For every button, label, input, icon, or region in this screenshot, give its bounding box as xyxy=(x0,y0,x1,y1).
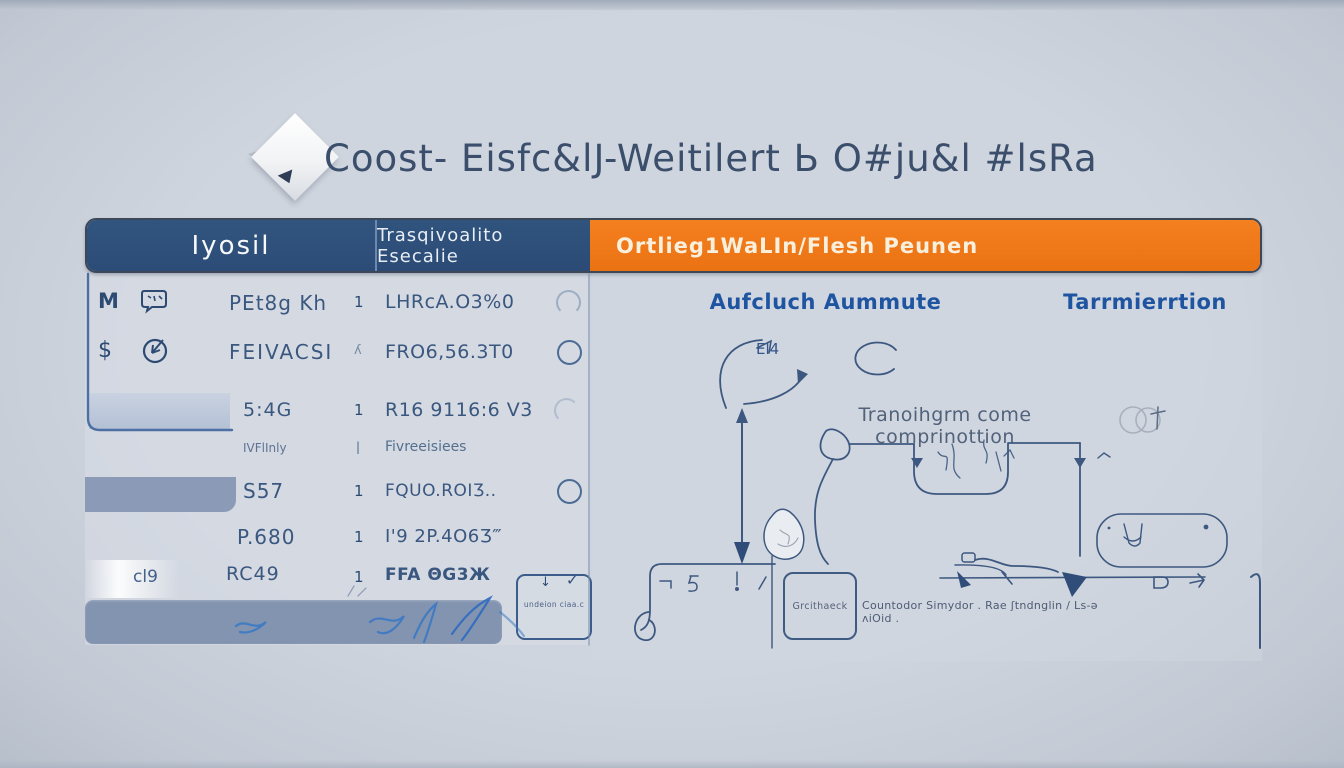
row4-value: Fivreeisiees xyxy=(385,439,466,455)
row7-number: 1 xyxy=(354,568,364,586)
row2-number: ʎ xyxy=(354,343,362,358)
header-label-col2: Trasqivoalito Esecalie xyxy=(377,225,590,267)
row1-value: LHRcA.O3%0 xyxy=(385,291,514,313)
header-label-col3: Ortlieg1WaLIn/Flesh Peunen xyxy=(616,234,978,258)
chat-bubble-icon xyxy=(140,288,168,318)
down-arrow-icon: ↓ xyxy=(540,575,551,590)
row3-value: R16 9116:6 V3 xyxy=(385,399,533,421)
row4-number: | xyxy=(356,440,360,454)
row6-number: 1 xyxy=(354,528,364,546)
history-clock-icon xyxy=(139,334,171,370)
row7-name: RC49 xyxy=(226,563,280,585)
row3-radio-icon[interactable] xyxy=(554,398,579,423)
row2-radio-icon[interactable] xyxy=(557,340,582,365)
row6-value: I'9 2P.4O6Ʒ‴ xyxy=(385,526,502,547)
header-cell-iyosil[interactable]: Iyosil xyxy=(87,220,375,271)
flow-center-text: Tranoihgrm come comprinottion xyxy=(799,404,1091,448)
row5-selection-bar[interactable] xyxy=(85,477,236,512)
flow-column-right-title: Tarrmierrtion xyxy=(1030,290,1260,314)
flow-caption: Countodor Simydor . Rae ʃtndnglin / Ls-ə… xyxy=(862,599,1128,625)
screenshot-root: Coost- Eisfc&lJ-Weitilert Ь O#ju&l #lsRa… xyxy=(0,0,1344,768)
row7-value: FFA ΘG3Ж xyxy=(385,565,490,585)
row5-value: FQUO.ROIƷ.. xyxy=(385,481,497,501)
flow-column-left-title: Aufcluch Aummute xyxy=(633,290,1018,314)
flow-process-box[interactable]: Grcithaeck xyxy=(783,572,857,640)
row2-dollar-icon: $ xyxy=(98,338,112,363)
table-header-bar: Iyosil Trasqivoalito Esecalie Ortlieg1Wa… xyxy=(85,218,1262,273)
check-icon: ✓ xyxy=(566,571,579,589)
row4-name: IVFlInly xyxy=(243,441,287,455)
row1-name: PEt8g Kh xyxy=(229,291,327,315)
row1-number: 1 xyxy=(354,293,364,311)
header-cell-trasqivoalito[interactable]: Trasqivoalito Esecalie xyxy=(375,220,590,271)
row1-radio-icon[interactable] xyxy=(556,290,581,315)
row5-radio-icon[interactable] xyxy=(557,479,582,504)
row5-name: S57 xyxy=(243,479,284,503)
note-box-label: undeion ciaa.c xyxy=(519,600,589,609)
header-label-col1: Iyosil xyxy=(192,231,271,261)
flow-process-box-label: Grcithaeck xyxy=(792,601,847,612)
table-footer-bar[interactable] xyxy=(85,600,502,644)
row2-value: FRO6,56.3T0 xyxy=(385,341,514,363)
row3-input-bar[interactable] xyxy=(89,393,230,429)
row1-letter-icon: M xyxy=(98,289,119,313)
row6-name: P.680 xyxy=(237,525,295,549)
row2-name: FEIVACSI xyxy=(229,340,333,364)
row3-number: 1 xyxy=(354,401,364,419)
row3-name: 5:4G xyxy=(243,399,292,421)
header-cell-orange[interactable]: Ortlieg1WaLIn/Flesh Peunen xyxy=(590,220,1260,271)
flow-label-el4: El4 xyxy=(756,340,779,358)
page-title: Coost- Eisfc&lJ-Weitilert Ь O#ju&l #lsRa xyxy=(324,137,1024,180)
row5-number: 1 xyxy=(354,482,364,500)
row7-prefix: cl9 xyxy=(133,567,158,587)
